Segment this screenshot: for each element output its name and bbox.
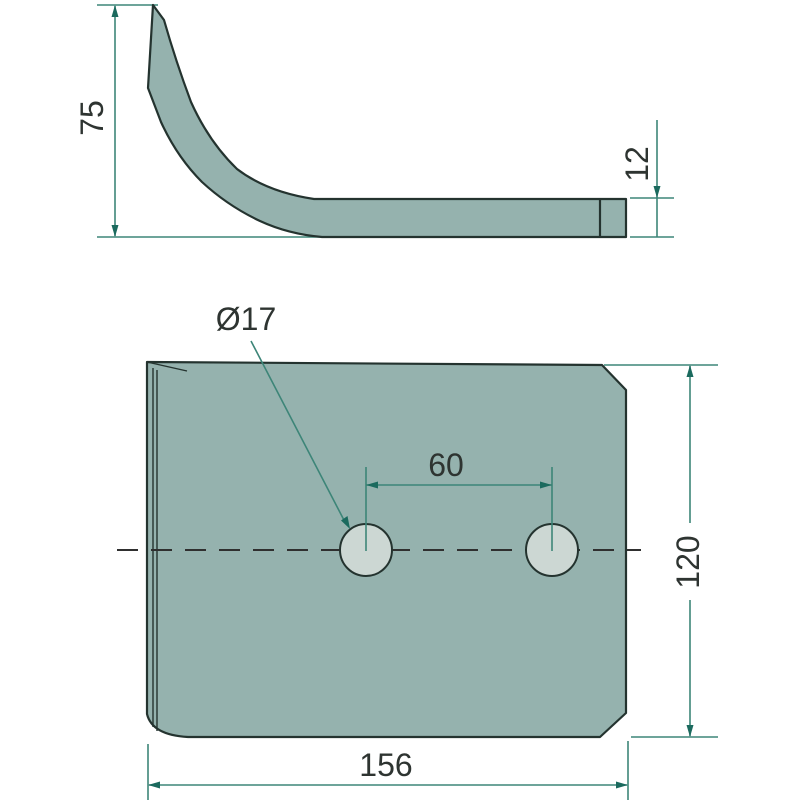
side-view: 75 12 bbox=[74, 5, 674, 237]
dim-12: 12 bbox=[619, 120, 674, 237]
dim-75-arrow-up-icon bbox=[112, 5, 119, 17]
dim-120-label: 120 bbox=[670, 535, 706, 588]
dim-60-label: 60 bbox=[428, 447, 464, 483]
front-view: 60 Ø17 120 bbox=[117, 301, 718, 800]
dim-156-label: 156 bbox=[359, 747, 412, 783]
dim-75-label: 75 bbox=[74, 100, 110, 136]
dim-120-arrow-down-icon bbox=[687, 725, 694, 737]
dim-156: 156 bbox=[148, 741, 628, 800]
dim-156-arrow-right-icon bbox=[616, 782, 628, 789]
dim-120-arrow-up-icon bbox=[687, 365, 694, 377]
hole-diameter-label: Ø17 bbox=[216, 301, 276, 337]
dim-75-arrow-down-icon bbox=[112, 225, 119, 237]
technical-drawing: 75 12 bbox=[0, 0, 800, 800]
dim-156-arrow-left-icon bbox=[148, 782, 160, 789]
dim-12-arrow-down-icon bbox=[654, 186, 661, 198]
blade-profile-outline bbox=[148, 5, 626, 237]
dim-12-label: 12 bbox=[619, 146, 655, 182]
drawing-canvas: 75 12 bbox=[0, 0, 800, 800]
